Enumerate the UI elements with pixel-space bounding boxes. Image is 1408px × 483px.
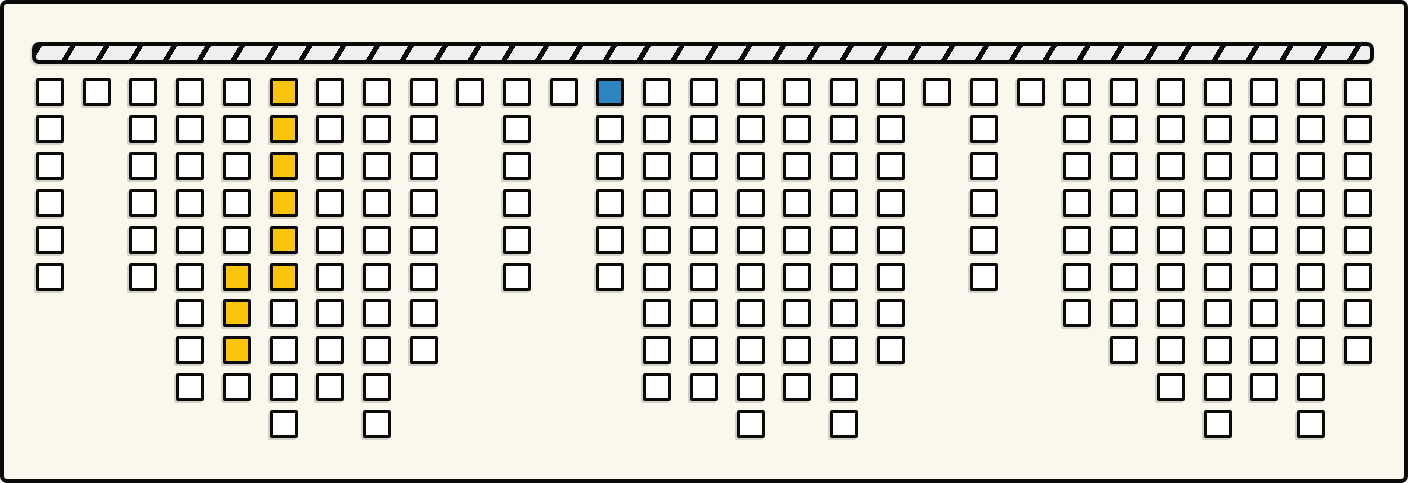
grid-cell[interactable] [410,299,438,327]
grid-cell[interactable] [596,115,624,143]
grid-cell[interactable] [1250,152,1278,180]
grid-cell[interactable] [737,78,765,106]
grid-cell[interactable] [1204,115,1232,143]
grid-cell[interactable] [877,263,905,291]
grid-cell[interactable] [410,115,438,143]
grid-cell[interactable] [1297,336,1325,364]
grid-cell[interactable] [36,78,64,106]
grid-cell[interactable] [596,226,624,254]
grid-cell[interactable] [737,189,765,217]
highlighted-yellow-cell[interactable] [270,263,298,291]
grid-cell[interactable] [503,152,531,180]
grid-cell[interactable] [410,152,438,180]
grid-cell[interactable] [1250,226,1278,254]
grid-cell[interactable] [223,115,251,143]
grid-cell[interactable] [783,263,811,291]
grid-cell[interactable] [690,336,718,364]
grid-cell[interactable] [410,336,438,364]
grid-cell[interactable] [1157,299,1185,327]
grid-cell[interactable] [830,78,858,106]
grid-cell[interactable] [643,189,671,217]
grid-cell[interactable] [36,226,64,254]
grid-cell[interactable] [1063,115,1091,143]
grid-cell[interactable] [690,115,718,143]
grid-cell[interactable] [36,152,64,180]
grid-cell[interactable] [1297,263,1325,291]
grid-cell[interactable] [176,373,204,401]
grid-cell[interactable] [643,78,671,106]
grid-cell[interactable] [363,152,391,180]
grid-cell[interactable] [1297,78,1325,106]
grid-cell[interactable] [363,373,391,401]
grid-cell[interactable] [176,115,204,143]
grid-cell[interactable] [690,263,718,291]
grid-cell[interactable] [363,189,391,217]
grid-cell[interactable] [1344,299,1372,327]
grid-cell[interactable] [1063,152,1091,180]
grid-cell[interactable] [737,152,765,180]
grid-cell[interactable] [363,115,391,143]
grid-cell[interactable] [1157,226,1185,254]
grid-cell[interactable] [737,263,765,291]
grid-cell[interactable] [1110,336,1138,364]
grid-cell[interactable] [1344,263,1372,291]
grid-cell[interactable] [1204,226,1232,254]
highlighted-yellow-cell[interactable] [223,299,251,327]
grid-cell[interactable] [1157,115,1185,143]
grid-cell[interactable] [270,410,298,438]
grid-cell[interactable] [877,189,905,217]
grid-cell[interactable] [83,78,111,106]
grid-cell[interactable] [316,152,344,180]
grid-cell[interactable] [1063,299,1091,327]
highlighted-yellow-cell[interactable] [270,189,298,217]
grid-cell[interactable] [129,115,157,143]
grid-cell[interactable] [129,263,157,291]
grid-cell[interactable] [643,263,671,291]
grid-cell[interactable] [1297,226,1325,254]
grid-cell[interactable] [176,336,204,364]
grid-cell[interactable] [410,263,438,291]
grid-cell[interactable] [737,115,765,143]
grid-cell[interactable] [737,299,765,327]
grid-cell[interactable] [877,115,905,143]
grid-cell[interactable] [1344,189,1372,217]
grid-cell[interactable] [270,336,298,364]
grid-cell[interactable] [1157,152,1185,180]
grid-cell[interactable] [1250,115,1278,143]
grid-cell[interactable] [1110,152,1138,180]
grid-cell[interactable] [830,336,858,364]
grid-cell[interactable] [316,115,344,143]
grid-cell[interactable] [783,336,811,364]
grid-cell[interactable] [1063,189,1091,217]
grid-cell[interactable] [737,410,765,438]
grid-cell[interactable] [1297,410,1325,438]
grid-cell[interactable] [363,336,391,364]
grid-cell[interactable] [783,189,811,217]
grid-cell[interactable] [970,115,998,143]
grid-cell[interactable] [176,78,204,106]
grid-cell[interactable] [970,226,998,254]
grid-cell[interactable] [1063,78,1091,106]
grid-cell[interactable] [129,189,157,217]
grid-cell[interactable] [410,226,438,254]
grid-cell[interactable] [1204,152,1232,180]
grid-cell[interactable] [690,226,718,254]
block-grid [4,4,1404,479]
grid-cell[interactable] [1204,78,1232,106]
highlighted-yellow-cell[interactable] [270,115,298,143]
grid-cell[interactable] [363,410,391,438]
grid-cell[interactable] [596,152,624,180]
grid-cell[interactable] [643,226,671,254]
grid-cell[interactable] [596,263,624,291]
grid-cell[interactable] [176,226,204,254]
grid-cell[interactable] [1157,336,1185,364]
grid-cell[interactable] [1297,152,1325,180]
grid-cell[interactable] [176,299,204,327]
grid-cell[interactable] [830,189,858,217]
grid-cell[interactable] [970,189,998,217]
grid-cell[interactable] [830,263,858,291]
selected-blue-cell[interactable] [596,78,624,106]
grid-cell[interactable] [36,189,64,217]
grid-cell[interactable] [1250,78,1278,106]
grid-cell[interactable] [503,189,531,217]
grid-cell[interactable] [1157,189,1185,217]
grid-cell[interactable] [223,226,251,254]
grid-cell[interactable] [1204,410,1232,438]
grid-cell[interactable] [877,78,905,106]
grid-cell[interactable] [1297,373,1325,401]
grid-cell[interactable] [316,78,344,106]
grid-cell[interactable] [830,410,858,438]
grid-cell[interactable] [690,373,718,401]
grid-cell[interactable] [830,115,858,143]
grid-cell[interactable] [223,152,251,180]
grid-cell[interactable] [1110,115,1138,143]
grid-cell[interactable] [1110,263,1138,291]
grid-cell[interactable] [223,373,251,401]
grid-cell[interactable] [830,299,858,327]
grid-cell[interactable] [783,299,811,327]
grid-cell[interactable] [783,373,811,401]
highlighted-yellow-cell[interactable] [270,226,298,254]
highlighted-yellow-cell[interactable] [270,78,298,106]
grid-cell[interactable] [316,189,344,217]
grid-cell[interactable] [176,189,204,217]
grid-cell[interactable] [1250,373,1278,401]
grid-cell[interactable] [270,373,298,401]
grid-cell[interactable] [1157,78,1185,106]
grid-cell[interactable] [129,226,157,254]
grid-cell[interactable] [830,152,858,180]
grid-cell[interactable] [316,263,344,291]
grid-cell[interactable] [1204,263,1232,291]
grid-cell[interactable] [1017,78,1045,106]
grid-cell[interactable] [36,115,64,143]
grid-cell[interactable] [503,78,531,106]
grid-cell[interactable] [316,299,344,327]
grid-cell[interactable] [176,263,204,291]
grid-cell[interactable] [877,226,905,254]
grid-cell[interactable] [316,226,344,254]
grid-cell[interactable] [877,152,905,180]
grid-cell[interactable] [503,115,531,143]
grid-cell[interactable] [1157,263,1185,291]
grid-cell[interactable] [36,263,64,291]
grid-cell[interactable] [1344,78,1372,106]
grid-cell[interactable] [129,78,157,106]
grid-cell[interactable] [690,78,718,106]
grid-cell[interactable] [270,299,298,327]
grid-cell[interactable] [1157,373,1185,401]
highlighted-yellow-cell[interactable] [223,336,251,364]
grid-cell[interactable] [1110,189,1138,217]
grid-cell[interactable] [877,299,905,327]
grid-cell[interactable] [783,226,811,254]
grid-cell[interactable] [690,189,718,217]
grid-cell[interactable] [1344,115,1372,143]
grid-cell[interactable] [783,152,811,180]
grid-cell[interactable] [503,263,531,291]
grid-cell[interactable] [223,189,251,217]
grid-cell[interactable] [970,78,998,106]
grid-cell[interactable] [1344,336,1372,364]
grid-cell[interactable] [550,78,578,106]
grid-cell[interactable] [643,336,671,364]
grid-cell[interactable] [970,152,998,180]
grid-cell[interactable] [223,78,251,106]
grid-cell[interactable] [643,373,671,401]
grid-cell[interactable] [1110,226,1138,254]
grid-cell[interactable] [1297,189,1325,217]
grid-cell[interactable] [363,263,391,291]
grid-cell[interactable] [690,299,718,327]
grid-cell[interactable] [643,152,671,180]
grid-cell[interactable] [1110,299,1138,327]
grid-cell[interactable] [783,115,811,143]
grid-cell[interactable] [596,189,624,217]
grid-cell[interactable] [877,336,905,364]
grid-cell[interactable] [737,336,765,364]
grid-cell[interactable] [970,263,998,291]
grid-cell[interactable] [410,78,438,106]
grid-cell[interactable] [737,226,765,254]
grid-cell[interactable] [1204,189,1232,217]
grid-cell[interactable] [1344,226,1372,254]
grid-cell[interactable] [1204,299,1232,327]
grid-cell[interactable] [1344,152,1372,180]
grid-cell[interactable] [503,226,531,254]
grid-cell[interactable] [737,373,765,401]
highlighted-yellow-cell[interactable] [270,152,298,180]
grid-cell[interactable] [1110,78,1138,106]
grid-cell[interactable] [316,373,344,401]
grid-cell[interactable] [410,189,438,217]
grid-cell[interactable] [783,78,811,106]
grid-cell[interactable] [1250,336,1278,364]
grid-cell[interactable] [176,152,204,180]
grid-cell[interactable] [316,336,344,364]
grid-cell[interactable] [830,373,858,401]
highlighted-yellow-cell[interactable] [223,263,251,291]
grid-cell[interactable] [1204,336,1232,364]
grid-cell[interactable] [1250,263,1278,291]
grid-cell[interactable] [363,299,391,327]
grid-cell[interactable] [1250,189,1278,217]
grid-cell[interactable] [1063,263,1091,291]
scene-frame [0,0,1408,483]
grid-cell[interactable] [1250,299,1278,327]
grid-cell[interactable] [1063,226,1091,254]
grid-cell[interactable] [643,115,671,143]
grid-cell[interactable] [1297,115,1325,143]
grid-cell[interactable] [1297,299,1325,327]
grid-cell[interactable] [1204,373,1232,401]
grid-cell[interactable] [923,78,951,106]
grid-cell[interactable] [830,226,858,254]
grid-cell[interactable] [129,152,157,180]
grid-cell[interactable] [690,152,718,180]
grid-cell[interactable] [456,78,484,106]
grid-cell[interactable] [363,78,391,106]
grid-cell[interactable] [643,299,671,327]
grid-cell[interactable] [363,226,391,254]
